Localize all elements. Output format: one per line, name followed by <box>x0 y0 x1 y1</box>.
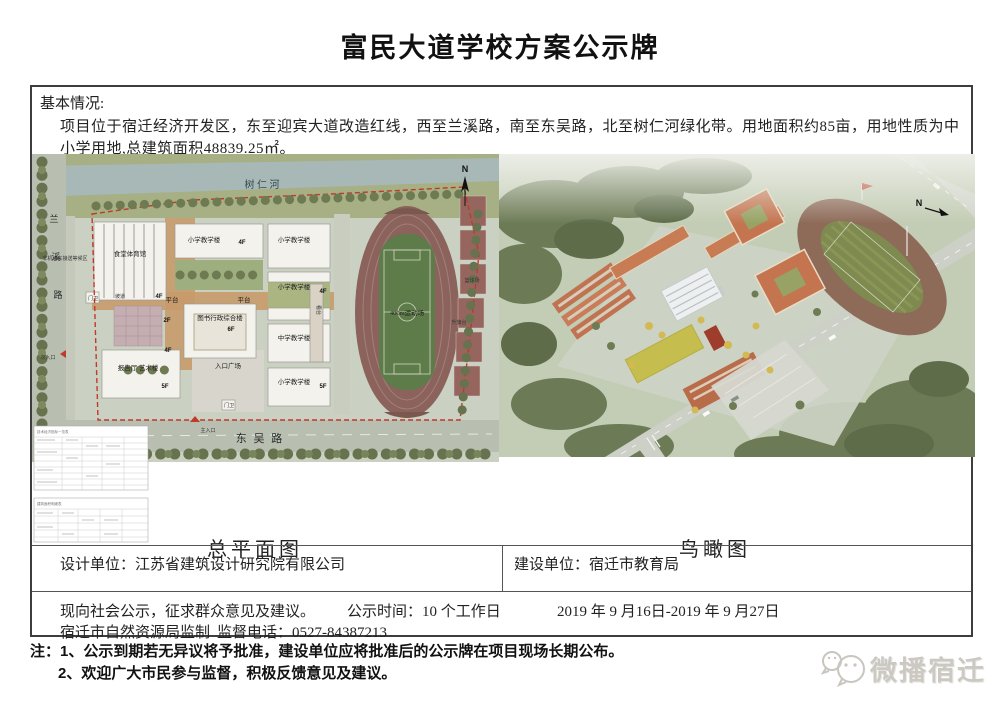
design-unit-label: 设计单位： <box>60 557 135 573</box>
primary-school-label: 小学教学楼 <box>278 377 311 386</box>
basic-info-label: 基本情况: <box>40 93 961 115</box>
main-entrance-label: 主入口 <box>200 427 215 434</box>
svg-text:N: N <box>462 164 469 174</box>
notice-board-page: { "title": "富民大道学校方案公示牌", "colors": { "b… <box>0 0 1000 707</box>
dongwu-road-label: 东 吴 路 <box>236 432 285 445</box>
note-item-2: 2、欢迎广大市民参与监督，积极反馈意见及建议。 <box>58 663 830 685</box>
basketball-label: 篮球场 <box>464 277 479 284</box>
guard-label: 门卫 <box>224 402 234 409</box>
site-plan-drawing: 树 仁 河 <box>32 154 499 545</box>
notice-board-frame: 基本情况: 项目位于宿迁经济开发区，东至迎宾大道改造红线，西至兰溪路，南至东吴路… <box>30 85 973 637</box>
primary-school-label: 小学教学楼 <box>188 235 221 244</box>
page-title: 富民大道学校方案公示牌 <box>0 26 1000 65</box>
primary-school-label: 小学教学楼 <box>278 282 311 291</box>
watermark: 微播宿迁 <box>818 645 986 691</box>
build-unit-label: 建设单位： <box>514 557 589 573</box>
svg-text:溪: 溪 <box>51 251 60 262</box>
ramp-label: 坡道 <box>115 293 125 300</box>
library-admin-label: 图书行政综合楼 <box>197 313 243 322</box>
guard-label: 门卫 <box>88 295 98 302</box>
notice-phone: 监督电话：0527-84387213 <box>217 621 387 642</box>
primary-school-label: 小学教学楼 <box>278 235 311 244</box>
floor-label: 4F <box>164 348 171 354</box>
entry-plaza-label: 入口广场 <box>215 361 242 370</box>
floor-label: 4F <box>238 240 245 246</box>
note-item-1: 注：1、公示到期若无异议将予批准，建设单位应将批准后的公示牌在项目现场长期公布。 <box>30 641 830 663</box>
watermark-text: 微播宿迁 <box>870 649 986 688</box>
site-plan-image: 树 仁 河 <box>32 154 499 545</box>
units-divider <box>502 546 503 591</box>
floor-label: 4F <box>319 289 326 295</box>
svg-text:路: 路 <box>53 289 62 300</box>
svg-text:N: N <box>916 198 923 208</box>
indicator-table: 技术经济指标一览表 <box>34 426 148 490</box>
notice-duration: 公示时间：10 个工作日 <box>347 600 501 621</box>
floor-label: 2F <box>163 318 170 324</box>
platform-label: 平台 <box>238 295 251 304</box>
floor-label: 5F <box>319 384 326 390</box>
units-row: 设计单位：江苏省建筑设计研究院有限公司 建设单位：宿迁市教育局 <box>32 545 971 591</box>
notes-section: 注：1、公示到期若无异议将予批准，建设单位应将批准后的公示牌在项目现场长期公布。… <box>30 641 830 685</box>
side-entrance-label: 次入口 <box>40 354 55 361</box>
waiting-area-label: 非机动车接送等候区 <box>42 255 87 262</box>
svg-text:技术经济指标一览表: 技术经济指标一览表 <box>37 429 69 434</box>
river-label: 树 仁 河 <box>245 178 280 191</box>
platform-label: 平台 <box>166 295 179 304</box>
floor-label: 6F <box>227 327 234 333</box>
sports-field-label: 400m运动场 <box>390 308 425 317</box>
floor-label: 4F <box>155 294 162 300</box>
design-unit-value: 江苏省建筑设计研究院有限公司 <box>135 557 345 573</box>
drawings-area: 树 仁 河 <box>32 154 971 545</box>
notice-supervisor: 宿迁市自然资源局监制 <box>60 621 210 642</box>
design-unit: 设计单位：江苏省建筑设计研究院有限公司 <box>60 553 345 574</box>
build-unit: 建设单位：宿迁市教育局 <box>514 553 679 574</box>
aerial-view-drawing: N <box>499 154 975 457</box>
svg-text:兰: 兰 <box>49 213 58 224</box>
canteen-gym-label: 食堂体育馆 <box>114 249 147 258</box>
aerial-view-image: N <box>499 154 975 457</box>
area-detail-table: 建筑面积明细表 <box>34 498 148 542</box>
notice-row: 现向社会公示，征求群众意见及建议。 公示时间：10 个工作日 2019 年 9 … <box>32 591 971 639</box>
svg-text:建筑面积明细表: 建筑面积明细表 <box>37 501 62 506</box>
basic-info-section: 基本情况: 项目位于宿迁经济开发区，东至迎宾大道改造红线，西至兰溪路，南至东吴路… <box>32 87 971 154</box>
flag-stage-label: 升旗台 <box>451 319 466 326</box>
middle-school-label: 中学教学楼 <box>278 333 311 342</box>
floor-label: 5F <box>161 384 168 390</box>
notice-statement: 现向社会公示，征求群众意见及建议。 <box>60 600 315 621</box>
chat-bubbles-logo-icon <box>818 645 870 691</box>
report-art-label: 报告厅 艺术楼 <box>118 363 159 372</box>
stand-label: 看台 <box>315 305 322 315</box>
build-unit-value: 宿迁市教育局 <box>589 557 679 573</box>
notice-dates: 2019 年 9 月16日-2019 年 9 月27日 <box>557 600 780 621</box>
